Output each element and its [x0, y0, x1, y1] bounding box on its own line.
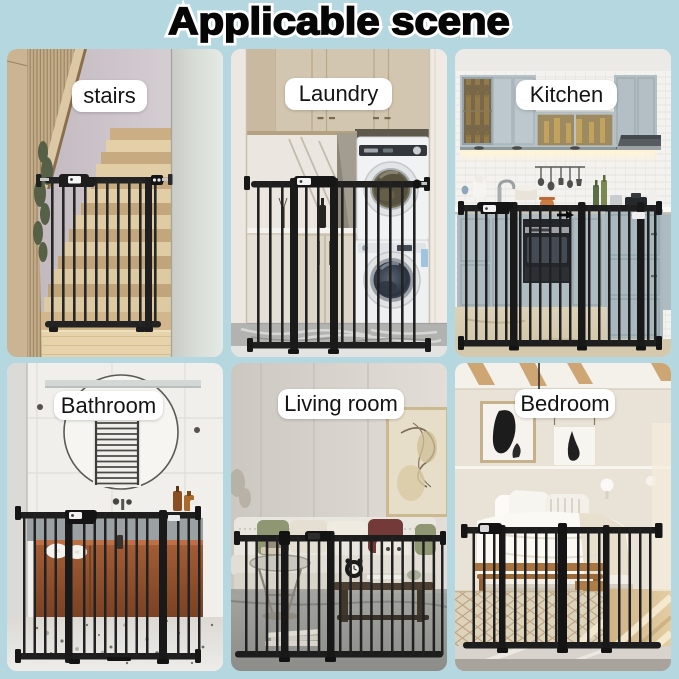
svg-text:Applicable scene: Applicable scene: [168, 1, 509, 43]
